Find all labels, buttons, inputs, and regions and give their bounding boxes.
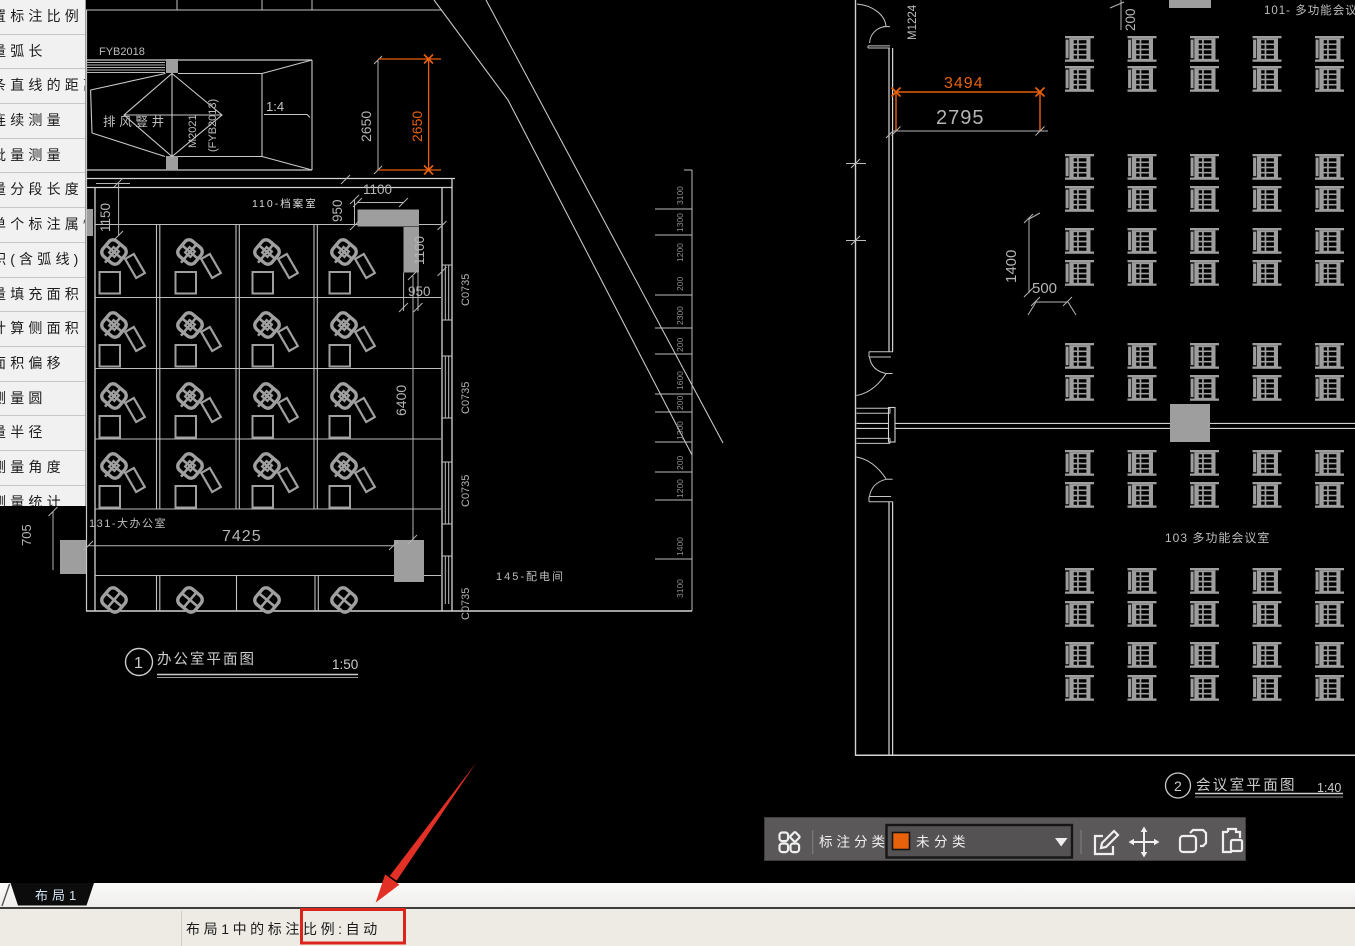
svg-text:1400: 1400 [675, 537, 685, 556]
svg-text:C0735: C0735 [460, 382, 472, 414]
svg-text:101- 多功能会议室: 101- 多功能会议室 [1264, 3, 1355, 17]
svg-text:2650: 2650 [409, 111, 425, 142]
svg-text:2: 2 [1174, 778, 1182, 794]
svg-text:131-大办公室: 131-大办公室 [89, 516, 167, 530]
svg-text:会议室平面图: 会议室平面图 [1196, 777, 1297, 794]
svg-text:标注分类: 标注分类 [819, 835, 889, 850]
svg-text:1100: 1100 [363, 182, 392, 197]
svg-text:200: 200 [675, 456, 685, 470]
svg-text:2795: 2795 [936, 107, 985, 129]
svg-text:200: 200 [675, 338, 685, 352]
svg-text:6400: 6400 [393, 385, 409, 416]
svg-text:7425: 7425 [222, 528, 262, 545]
svg-text:110-档案室: 110-档案室 [252, 197, 318, 210]
svg-text:103 多功能会议室: 103 多功能会议室 [1165, 530, 1270, 545]
svg-text:1400: 1400 [1003, 250, 1020, 283]
svg-text:705: 705 [19, 524, 34, 546]
svg-text:2300: 2300 [675, 306, 685, 325]
svg-text:FYB2018: FYB2018 [99, 46, 145, 58]
svg-text:1200: 1200 [675, 479, 685, 498]
svg-text:1300: 1300 [675, 213, 685, 232]
svg-text:C0735: C0735 [460, 475, 472, 507]
svg-text:未分类: 未分类 [916, 835, 970, 850]
svg-text:200: 200 [1123, 8, 1138, 31]
svg-text:M1224: M1224 [907, 4, 919, 40]
svg-text:950: 950 [408, 284, 431, 299]
svg-text:200: 200 [675, 277, 685, 291]
svg-text:3100: 3100 [675, 579, 685, 598]
svg-text:排风豎井: 排风豎井 [103, 115, 168, 129]
svg-text:3100: 3100 [675, 186, 685, 205]
svg-text:200: 200 [675, 396, 685, 410]
svg-text:1:4: 1:4 [266, 99, 284, 114]
svg-text:M2021: M2021 [187, 114, 199, 148]
svg-text:1200: 1200 [675, 243, 685, 262]
svg-text:(FYB2013): (FYB2013) [207, 99, 219, 152]
svg-text:1100: 1100 [412, 236, 427, 265]
svg-text:1600: 1600 [675, 371, 685, 390]
svg-text:3494: 3494 [944, 75, 984, 92]
svg-text:1150: 1150 [98, 203, 113, 232]
svg-text:1:50: 1:50 [332, 657, 358, 672]
svg-text:950: 950 [330, 199, 345, 222]
svg-text:500: 500 [1032, 280, 1057, 297]
svg-text:C0735: C0735 [460, 274, 472, 306]
svg-text:1: 1 [134, 655, 143, 672]
svg-text:2650: 2650 [358, 111, 374, 142]
svg-text:1300: 1300 [675, 421, 685, 440]
svg-text:C0735: C0735 [460, 588, 472, 620]
svg-text:145-配电间: 145-配电间 [496, 570, 565, 583]
svg-text:布局1: 布局1 [35, 888, 80, 903]
svg-text:办公室平面图: 办公室平面图 [157, 651, 256, 668]
